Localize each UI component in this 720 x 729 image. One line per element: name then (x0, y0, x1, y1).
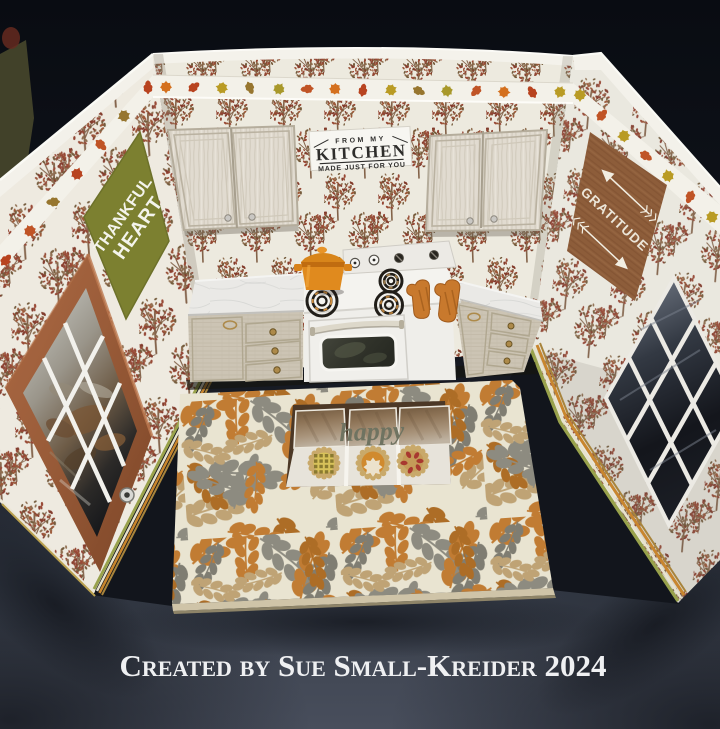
svg-text:happy: happy (339, 416, 405, 447)
svg-text:Created by Sue Small-Kreider 2: Created by Sue Small-Kreider 2024 (119, 648, 606, 683)
